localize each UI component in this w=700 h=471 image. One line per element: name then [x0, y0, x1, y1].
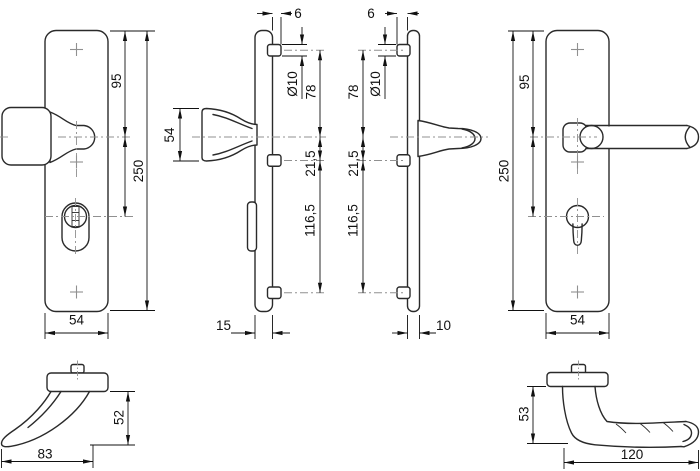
knob-grip-front [2, 108, 51, 166]
lever-profile-view: 53 120 [517, 361, 699, 470]
dim-250-knob-plate: 250 [110, 31, 155, 311]
dim-label-95-lever: 95 [517, 74, 532, 89]
dim-label-78-lever-side: 78 [346, 84, 361, 99]
dim-10-lever-side: 10 [392, 315, 451, 339]
dim-15-knob-side: 15 [216, 315, 290, 339]
screw-boss-bottom [397, 287, 410, 299]
dim-label-6-knob-side: 6 [294, 6, 302, 21]
dim-label-120: 120 [621, 447, 644, 462]
dim-label-dia10-knob-side: Ø10 [285, 71, 300, 97]
lever-profile-arm-inner [595, 387, 686, 424]
lever-side-silhouette [418, 121, 481, 157]
lever-plate-front-view: 95 250 54 [497, 31, 699, 340]
dim-52-knob-profile: 52 [90, 392, 135, 446]
dim-21-5-lever-side: 21,5 [346, 137, 365, 177]
knob-plate-front-view: 95 250 54 [0, 31, 155, 340]
dim-250-lever-plate: 250 [497, 31, 545, 311]
knob-profile-arm [2, 392, 90, 447]
dim-label-15: 15 [216, 318, 231, 333]
grip-groove-3 [663, 423, 673, 432]
dim-54-lever-plate: 54 [546, 313, 609, 340]
dim-label-116-5-knob-side: 116,5 [303, 204, 318, 237]
dim-label-54-knob: 54 [69, 313, 85, 328]
dim-53-lever-profile: 53 [517, 387, 569, 444]
dim-label-250-lever: 250 [497, 160, 512, 183]
dim-21-5-knob-side: 21,5 [303, 137, 322, 177]
lever-plate-side-view: 6 78 Ø10 21,5 116,5 [346, 6, 489, 339]
dim-label-52: 52 [112, 410, 127, 425]
knob-side-silhouette [202, 109, 257, 162]
dim-116-5-lever-side: 116,5 [346, 161, 366, 293]
dim-95-knob-plate: 95 [109, 31, 155, 217]
lever-profile-tip-contour [683, 425, 692, 442]
dim-116-5-knob-side: 116,5 [303, 161, 323, 293]
dim-label-10: 10 [436, 318, 451, 333]
lever-profile-arm-outer [563, 387, 682, 448]
grip-groove-1 [616, 424, 626, 433]
dim-label-6-lever-side: 6 [367, 6, 375, 21]
dim-label-78-knob-side: 78 [304, 84, 319, 99]
dim-label-54-lever: 54 [570, 313, 586, 328]
screw-boss-middle [397, 155, 410, 167]
dim-120-lever-profile: 120 [564, 447, 699, 469]
knob-plate-side-outline [255, 31, 273, 312]
knob-profile-view: 52 83 [2, 361, 136, 469]
dim-label-83: 83 [37, 447, 52, 462]
dim-label-250-knob: 250 [131, 160, 146, 183]
dim-label-95-knob: 95 [109, 73, 124, 88]
lever-profile-tip [681, 422, 699, 447]
technical-drawing-page: 95 250 54 [0, 0, 700, 471]
dim-83-knob-profile: 83 [2, 445, 94, 468]
door-fitting-drawing: 95 250 54 [0, 0, 700, 471]
dim-54-knob-plate: 54 [45, 313, 108, 340]
dim-54-knob-end: 54 [162, 109, 199, 162]
cylinder-cover-side-bump [248, 202, 257, 251]
dim-label-21-5-knob-side: 21,5 [303, 150, 318, 176]
lever-profile-rose [547, 373, 608, 387]
knob-plate-side-view: 54 6 Ø10 78 [162, 6, 326, 339]
lever-plate-side-outline [408, 31, 420, 312]
dim-label-53: 53 [517, 406, 532, 421]
screw-boss-middle [268, 155, 282, 167]
screw-boss-bottom [268, 287, 282, 299]
lever-bar-tip-contour [685, 127, 690, 148]
screw-boss-top [268, 45, 282, 57]
dim-label-dia10-lever-side: Ø10 [368, 71, 383, 97]
dim-label-116-5-lever-side: 116,5 [346, 204, 361, 237]
dim-label-54-knob-end: 54 [162, 127, 177, 143]
screw-boss-top [397, 45, 410, 57]
dim-dia10-lever-side: Ø10 [368, 27, 396, 99]
dim-label-21-5-lever-side: 21,5 [346, 150, 361, 176]
grip-groove-2 [640, 424, 650, 433]
knob-profile-arm-contour [28, 392, 61, 428]
